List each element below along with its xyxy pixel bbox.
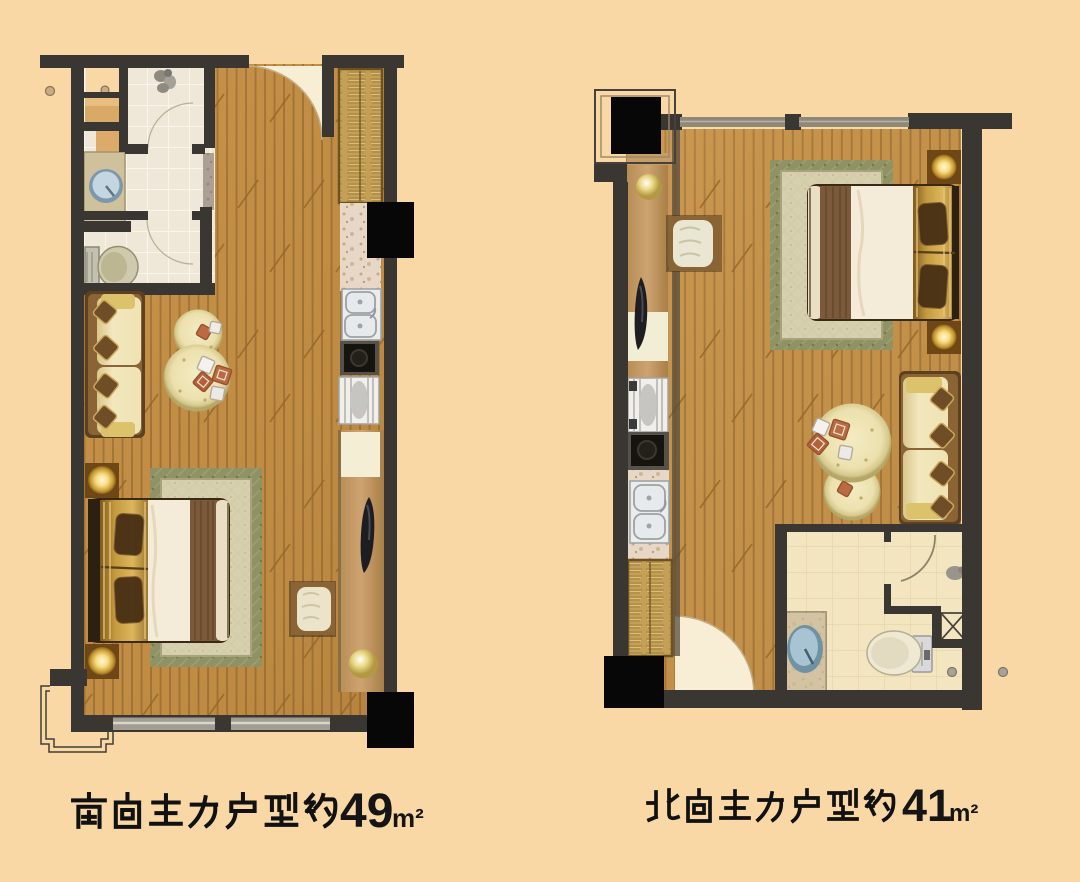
svg-text:49: 49 bbox=[340, 785, 393, 838]
svg-text:41: 41 bbox=[902, 780, 952, 831]
svg-text:m²: m² bbox=[392, 803, 424, 833]
svg-text:m²: m² bbox=[949, 800, 978, 827]
